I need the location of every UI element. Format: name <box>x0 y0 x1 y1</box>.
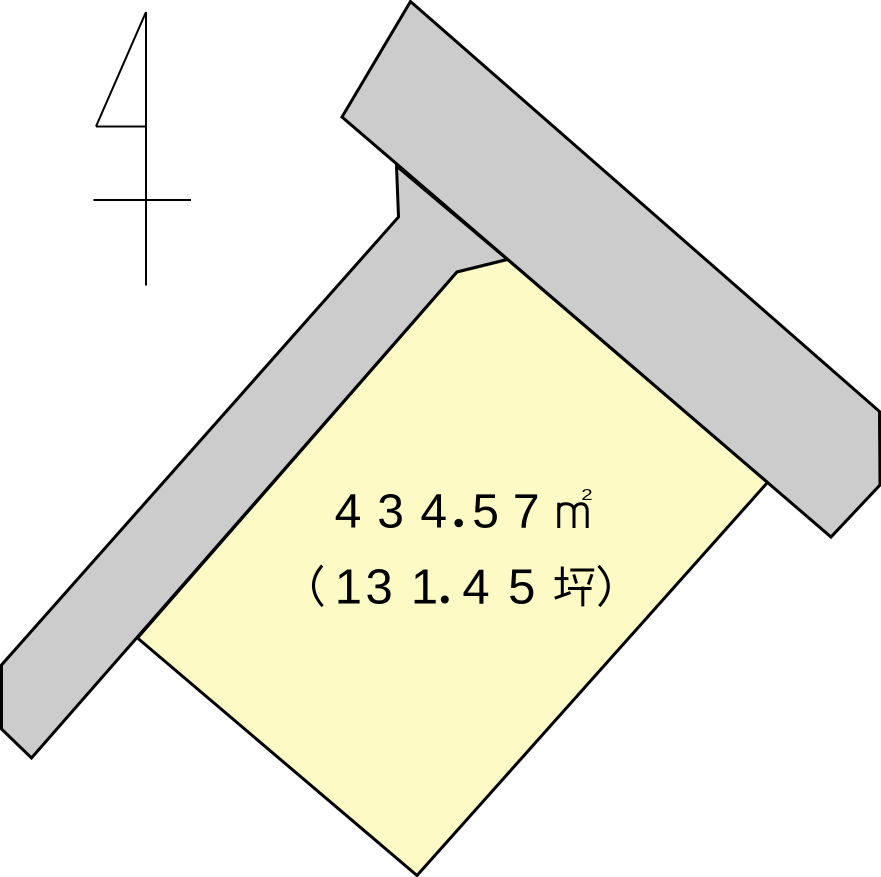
svg-text:3: 3 <box>377 486 404 539</box>
svg-text:5: 5 <box>472 486 499 539</box>
svg-text:4: 4 <box>462 561 489 615</box>
svg-text:4: 4 <box>335 486 362 539</box>
svg-text:4: 4 <box>420 486 447 539</box>
svg-text:7: 7 <box>513 486 540 539</box>
svg-text:5: 5 <box>508 561 535 615</box>
svg-text:1: 1 <box>411 561 438 615</box>
svg-text:3: 3 <box>366 561 393 615</box>
svg-text:1: 1 <box>335 561 362 615</box>
svg-text:2: 2 <box>581 486 592 503</box>
